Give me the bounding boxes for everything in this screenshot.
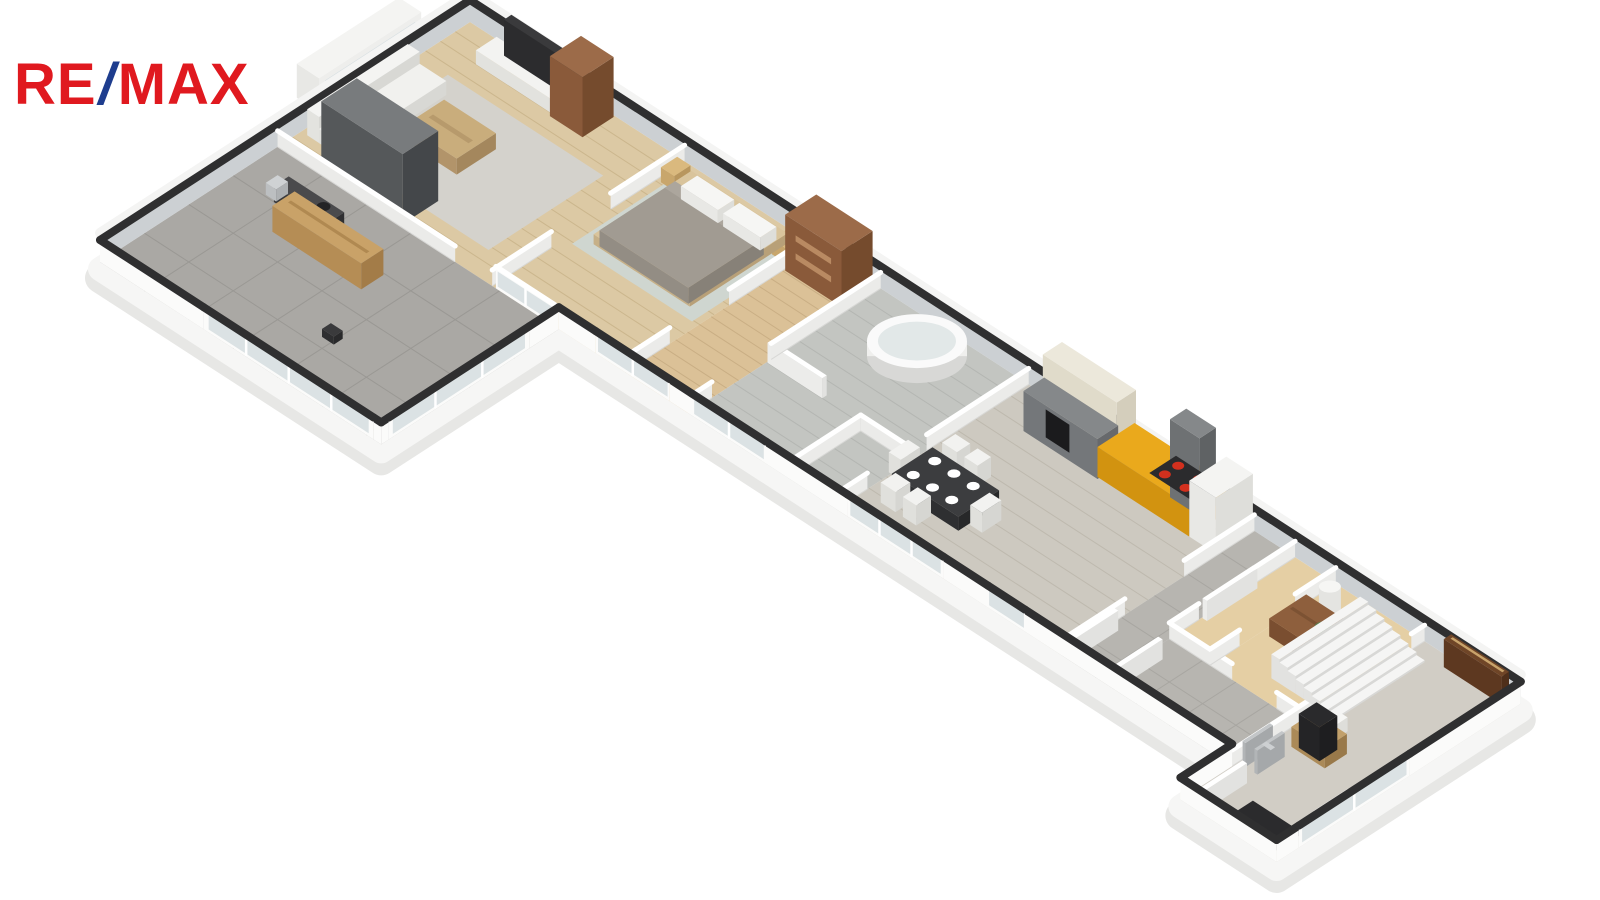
plate-2 [947, 469, 960, 477]
floorplan-3d-render [0, 0, 1600, 900]
logo-max: MAX [118, 52, 250, 117]
plate-5 [926, 483, 939, 491]
burner-2 [1159, 470, 1171, 478]
remax-logo: RE/MAX [14, 56, 250, 114]
pantry-door-side-sw [1203, 598, 1207, 621]
plate-3 [967, 482, 980, 490]
step-ladder-rail-2-side-sw [1254, 749, 1257, 775]
floorplan-page: RE/MAX [0, 0, 1600, 900]
bathtub-basin [878, 322, 956, 361]
plate-6 [945, 496, 958, 504]
hall-door-leaf-side-se [822, 375, 827, 398]
burner-1 [1172, 462, 1184, 470]
plate-1 [928, 457, 941, 465]
logo-re: RE [14, 52, 97, 117]
white-cylinder-bin-top [1319, 581, 1341, 593]
logo-slash: / [97, 52, 118, 117]
plate-4 [907, 471, 920, 479]
